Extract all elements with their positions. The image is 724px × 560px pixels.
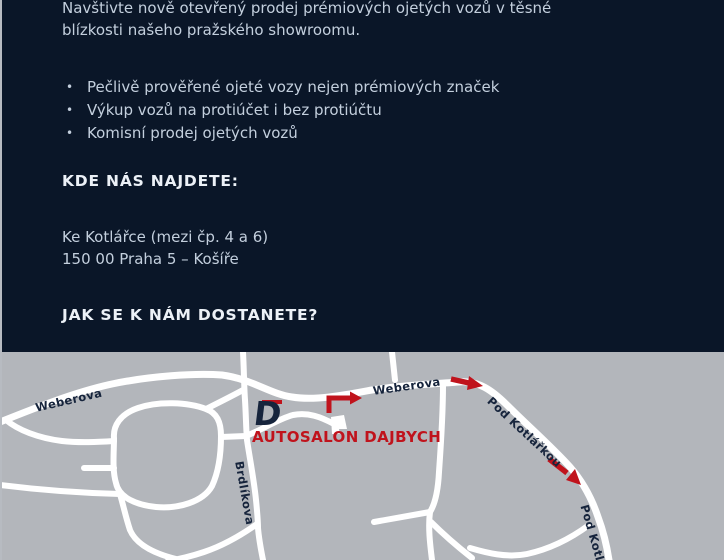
how-heading: JAK SE K NÁM DOSTANETE? [62,306,672,324]
map-canvas [0,352,724,560]
list-item: Komisní prodej ojetých vozů [62,122,672,145]
road-brdlikova-branch [168,524,257,560]
road-kotlarkou-branch [470,525,589,555]
road-southwest-horizontal [0,485,120,494]
road-south-branch-right [431,522,472,558]
address-street: Ke Kotlářce (mezi čp. 4 a 6) [62,226,672,248]
location-map: Weberova Weberova Pod Kotlářkou Brdlíkov… [0,352,724,560]
road-loop-north-link [206,390,243,409]
dajbych-logo: D [254,397,281,430]
info-section: Navštivte nově otevřený prodej prémiovýc… [0,0,724,352]
list-item: Pečlivě prověřené ojeté vozy nejen prémi… [62,76,672,99]
road-loop [114,403,222,507]
dealer-name: AUTOSALON DAJBYCH [252,428,441,446]
benefits-list: Pečlivě prověřené ojeté vozy nejen prémi… [62,76,672,145]
road-west-connector [6,420,114,442]
address-city: 150 00 Praha 5 – Košíře [62,248,672,270]
flyer: Navštivte nově otevřený prodej prémiovýc… [0,0,724,560]
road-south-branch-left [374,512,430,522]
logo-letter: D [252,397,283,430]
intro-line-1: Navštivte nově otevřený prodej prémiovýc… [62,0,672,19]
road-top-stub [392,352,395,380]
intro-paragraph: Navštivte nově otevřený prodej prémiovýc… [62,0,672,41]
intro-line-2: blízkosti našeho pražského showroomu. [62,19,672,41]
where-heading: KDE NÁS NAJDETE: [62,172,672,190]
address-block: Ke Kotlářce (mezi čp. 4 a 6) 150 00 Prah… [62,226,672,270]
page-edge [0,0,2,560]
list-item: Výkup vozů na protiúčet i bez protiúčtu [62,99,672,122]
